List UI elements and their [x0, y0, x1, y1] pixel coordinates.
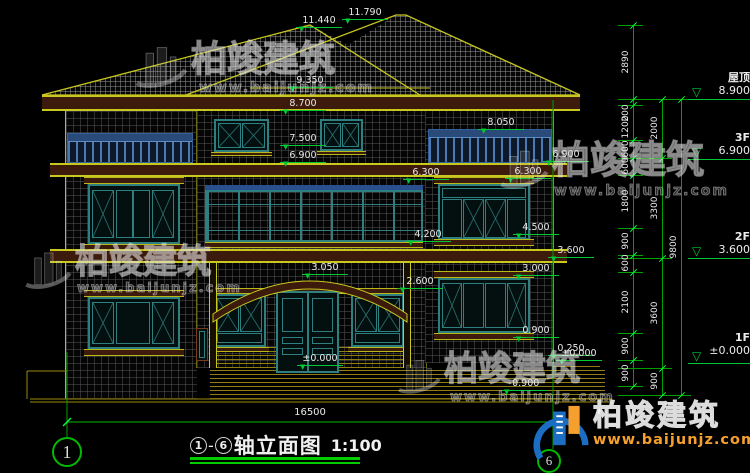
porch-window-sill — [348, 347, 407, 352]
axis-bubble-1: 1 — [52, 437, 82, 467]
dim-chain-line-1 — [662, 99, 663, 395]
window-sill — [211, 152, 272, 156]
floor-marker-line-3F — [688, 159, 750, 160]
right-balcony-railing — [428, 129, 552, 163]
railing-top-rail — [429, 130, 551, 138]
elevation-dim-3.600: 3.600▼ — [548, 246, 594, 256]
porch-window-right — [351, 294, 404, 347]
second-floor-window-left — [84, 177, 184, 250]
elevation-dim-8.700: 8.700▼ — [280, 99, 326, 109]
brand-url: www.baijunjz.com — [593, 432, 750, 448]
elevation-dim-11.790: 11.790▼ — [342, 8, 388, 18]
chain-dim-3300: 3300 — [649, 188, 661, 228]
elevation-dim-7.500: 7.500▼ — [280, 134, 326, 144]
second-floor-window-band — [205, 183, 423, 248]
second-floor-cornice — [50, 249, 567, 263]
overall-width-dim: 16500 — [280, 407, 340, 418]
left-balcony-railing — [67, 133, 193, 163]
elevation-dim-9.350: 9.350▼ — [287, 76, 333, 86]
elevation-dim-0.900: 0.900▼ — [513, 326, 559, 336]
elevation-dim-±0.000: ±0.000▼ — [556, 349, 602, 359]
title-text: 轴立面图 — [234, 430, 322, 460]
elevation-dim-4.500: 4.500▼ — [513, 223, 559, 233]
elevation-dim-11.440: 11.440▼ — [296, 16, 342, 26]
porch-window-left — [213, 294, 266, 347]
watermark-url: www.baijunjz.com — [554, 183, 729, 199]
axis-from-circle: 1 — [190, 437, 207, 454]
third-floor-cornice — [50, 163, 567, 177]
chain-dim-9800: 9800 — [668, 227, 680, 267]
title-underline-thick — [190, 457, 360, 460]
title-scale: 1:100 — [331, 436, 382, 455]
chain-dim-1800: 1800 — [620, 181, 632, 221]
axis-to-circle: 6 — [215, 437, 232, 454]
ground-line — [30, 399, 612, 402]
floor-marker-3F: 3F6.900 — [688, 132, 750, 157]
brand-name: 柏竣建筑 — [593, 398, 750, 432]
drawing-title: 1 - 6 轴立面图 1:100 — [190, 430, 382, 460]
dim-chain-line-2 — [681, 99, 682, 395]
elevation-dim-6.900: 6.900▼ — [280, 151, 326, 161]
floor-marker-line-2F — [688, 258, 750, 259]
chain-dim-900: 900 — [620, 353, 632, 393]
right-side-steps — [553, 363, 600, 399]
railing-top-rail — [68, 134, 192, 142]
brand-logo-icon — [533, 398, 589, 468]
title-underline-thin — [190, 462, 360, 464]
floor-marker-line-屋顶 — [688, 99, 750, 100]
chain-dim-2000: 2000 — [649, 108, 661, 148]
elevation-dim-6.900: 6.900▼ — [543, 150, 589, 160]
brand-logo: 柏竣建筑 www.baijunjz.com — [533, 398, 750, 468]
elevation-dim-3.050: 3.050▼ — [302, 263, 348, 273]
first-floor-window-left — [84, 290, 184, 356]
floor-marker-1F: 1F±0.000 — [688, 332, 750, 357]
elevation-dim-6.300: 6.300▼ — [505, 167, 551, 177]
porch-pilaster-left — [209, 263, 217, 368]
left-step-block — [27, 371, 67, 399]
elevation-dim-8.050: 8.050▼ — [478, 118, 524, 128]
third-floor-window-right — [320, 119, 363, 151]
cad-elevation-drawing: 16500 1 - 6 轴立面图 1:100 1 6 柏竣建筑 www.baij… — [0, 0, 750, 473]
elevation-dim-6.300: 6.300▼ — [403, 168, 449, 178]
elevation-dim--0.900: -0.900▼ — [501, 379, 547, 389]
chain-dim-600: 600 — [620, 146, 632, 186]
floor-marker-屋顶: 屋顶8.900 — [688, 72, 750, 97]
floor-marker-2F: 2F3.600 — [688, 231, 750, 256]
elevation-dim-2.600: 2.600▼ — [397, 277, 443, 287]
chain-dim-3600: 3600 — [649, 293, 661, 333]
porch-window-sill — [210, 347, 269, 352]
floor-marker-line-1F — [688, 363, 750, 364]
elevation-dim-4.200: 4.200▼ — [405, 230, 451, 240]
title-dash: - — [208, 436, 214, 455]
elevation-dim-±0.000: ±0.000▼ — [297, 354, 343, 364]
elevation-dim-3.000: 3.000▼ — [513, 264, 559, 274]
chain-dim-2100: 2100 — [620, 282, 632, 322]
chain-dim-600: 600 — [620, 243, 632, 283]
third-floor-window-left — [214, 119, 269, 152]
slit-window — [196, 328, 208, 361]
chain-dim-900: 900 — [649, 361, 661, 401]
chain-dim-2890: 2890 — [620, 42, 632, 82]
overall-dim-line — [63, 418, 557, 426]
